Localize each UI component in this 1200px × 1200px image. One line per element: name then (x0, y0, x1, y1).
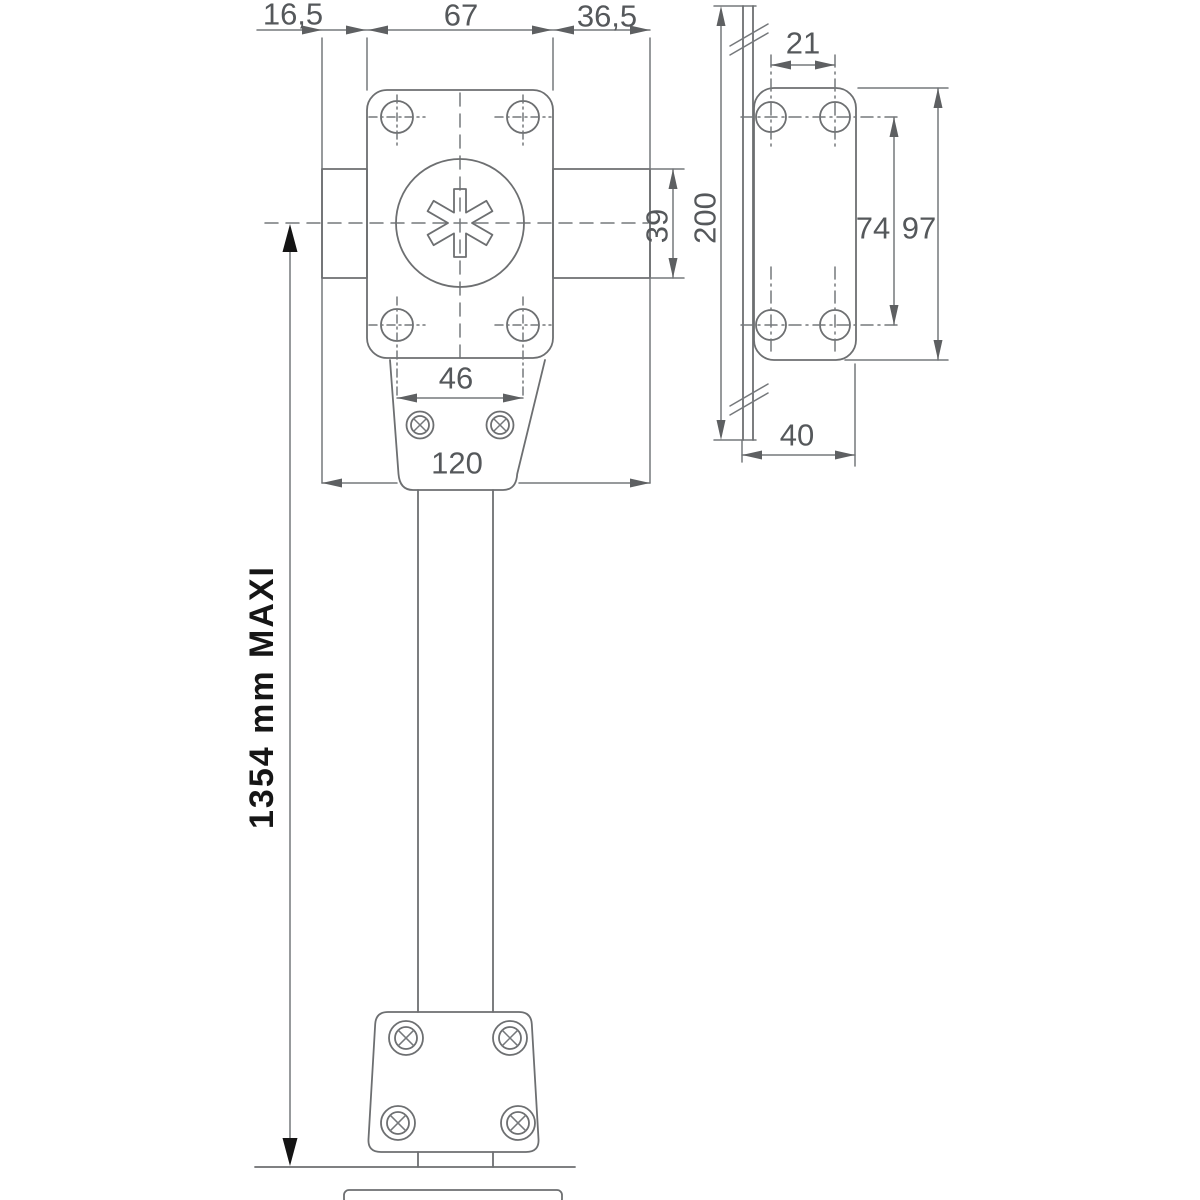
dim-bolt-height-label: 39 (640, 209, 675, 243)
dim-hole-spacing-vertical-label: 74 (856, 211, 890, 246)
dim-plate-depth-label: 40 (780, 418, 814, 453)
background (0, 0, 1200, 1200)
dim-rail-length-label: 200 (688, 192, 723, 244)
dim-screw-spacing-label: 46 (439, 361, 473, 396)
dim-max-extension-label: 1354 mm MAXI (243, 565, 281, 829)
dim-body-width-label: 67 (444, 0, 478, 33)
dim-plate-height-label: 97 (902, 211, 936, 246)
technical-drawing-page: 16,5 67 36,5 (0, 0, 1200, 1200)
dim-offset-right-label: 36,5 (577, 0, 637, 34)
lock-dimension-drawing: 16,5 67 36,5 (0, 0, 1200, 1200)
dim-overall-width-label: 120 (431, 446, 483, 481)
dim-hole-spacing-horizontal-label: 21 (786, 26, 820, 61)
dim-offset-left-label: 16,5 (263, 0, 323, 32)
